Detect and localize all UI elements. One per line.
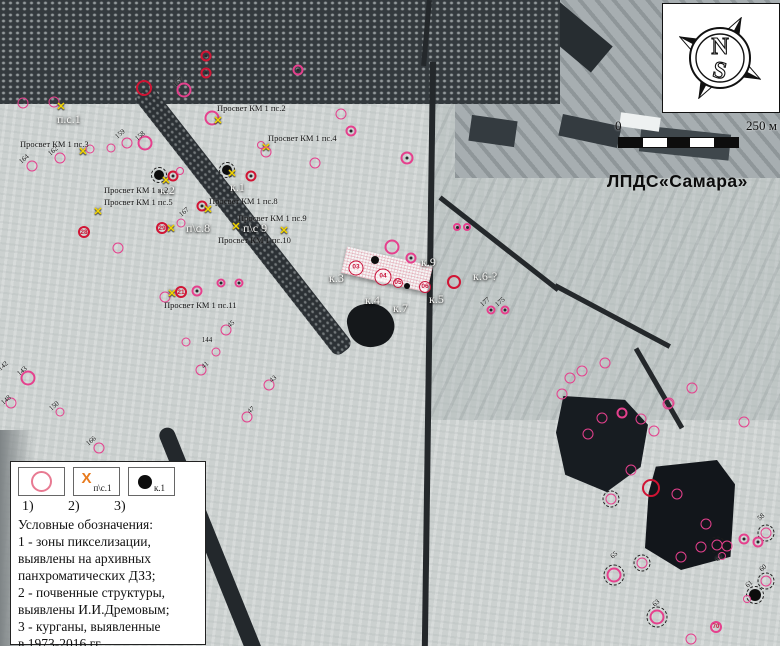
compass-north-letter: N [711,34,729,60]
pink-circle-marker [336,109,347,120]
map-number-label: 142 [0,360,10,373]
map-number-label: 63 [651,598,662,609]
pink-circle-marker [637,558,648,569]
pink-circle-marker [761,576,772,587]
pink-circle-dot-marker [401,152,414,165]
pink-circle-marker [385,240,400,255]
pink-circle-marker [686,634,697,645]
compass-rose-box: N S [662,3,780,113]
scale-max-label: 250 м [746,118,777,134]
yellow-x-marker: ✕ [226,168,238,180]
pink-circle-marker [687,383,698,394]
map-number-label: 60 [758,563,769,574]
pink-circle-dot-marker [453,223,461,231]
kurgan-black-dot-marker [404,283,410,289]
red-circle-marker [642,479,660,497]
clearing-label: Просвет КМ 1 пс.8 [209,196,278,206]
pink-circle-marker [676,552,687,563]
map-number-label: 65 [609,550,620,561]
pink-circle-marker [94,443,105,454]
pink-circle-marker [113,243,124,254]
clearing-label: Просвет КМ 1 пс.2 [217,103,286,113]
orange-x-icon: X [81,471,91,486]
yellow-x-marker: ✕ [212,115,224,127]
feature-label: к.9 [421,255,436,270]
red-circle-marker [136,80,152,96]
pink-circle-dot-marker [192,286,203,297]
pink-circle-marker [743,595,751,603]
feature-label: к.6-? [473,269,497,284]
clearing-label: Просвет КМ 1 пс.10 [218,235,291,245]
red-circle-marker [447,275,461,289]
pink-circle-marker [600,358,611,369]
map-number-label: 61 [744,579,755,590]
pink-circle-marker [176,167,184,175]
clearing-label: Просвет КМ 1 к.2 [104,185,168,195]
pink-circle-marker [122,138,133,149]
legend-title: Условные обозначения: [18,517,198,533]
legend-symbol-kurgan: к.1 [128,467,175,496]
pink-circle-marker [672,489,683,500]
pink-circle-marker [27,161,38,172]
pink-circle-marker [261,147,272,158]
scale-zero-label: 0 [615,118,622,134]
pink-circle-dot-marker [463,223,471,231]
feature-label: к.3 [329,271,344,286]
clearing-label: Просвет КМ 1 пс.4 [268,133,337,143]
pink-circle-marker [649,426,660,437]
aerial-map-figure: ✕✕✕✕✕✕✕✕✕29✕✕28✕210304050670157159158162… [0,0,780,646]
red-numbered-marker: 03 [349,261,364,276]
pink-circle-dot-marker [293,65,304,76]
feature-label: к.1 [230,180,245,195]
pink-circle-marker [761,528,772,539]
pink-circle-marker [606,494,617,505]
pink-numbered-marker: 70 [710,621,722,633]
feature-label: к.4 [365,293,380,308]
pink-circle-marker [722,541,733,552]
yellow-x-marker: ✕ [92,206,104,218]
pink-circle-marker [107,144,116,153]
legend-symbols: X п\с.1 к.1 [18,467,198,496]
map-number-label: 167 [177,206,190,219]
clearing-label: Просвет КМ 1 пс.11 [164,300,237,310]
pink-circle-marker [212,348,221,357]
pink-circle-marker [182,338,191,347]
legend-numbers: 1) 2) 3) [22,499,198,515]
red-circle-dot-marker [201,51,212,62]
feature-label: к.7 [393,301,408,316]
red-circle-dot-marker [201,68,212,79]
red-numbered-marker: 04 [375,269,392,286]
pink-circle-dot-marker [235,279,244,288]
black-dot-icon [138,475,152,489]
pink-circle-marker [626,465,637,476]
legend-symbol-pixelation-zone [18,467,65,496]
legend-number-2: 2) [68,499,114,515]
pink-circle-marker [577,366,588,377]
legend-box: X п\с.1 к.1 1) 2) 3) Условные обозначени… [10,461,206,645]
pink-circle-dot-marker [739,534,750,545]
legend-text: 1 - зоны пикселизации, выявлены на архив… [18,533,198,646]
pink-circle-marker [664,398,675,409]
pink-circle-dot-marker [617,408,628,419]
map-number-label: 58 [756,512,767,523]
yellow-x-marker: ✕ [165,223,177,235]
pink-circle-dot-marker [753,537,764,548]
scale-bar-segments [618,137,739,148]
feature-label: к.5 [429,292,444,307]
site-label: ЛПДС«Самара» [607,171,748,192]
feature-label: п.с.1 [57,112,81,127]
pink-circle-marker [565,373,576,384]
feature-label: к.2 [160,183,175,198]
compass-rose-icon: N S [663,4,778,111]
pink-circle-marker [701,519,712,530]
pink-circle-dot-marker [487,306,496,315]
scale-bar: 0 250 м [612,118,777,152]
pink-circle-dot-marker [501,306,510,315]
kurgan-black-dot-marker [371,256,379,264]
pink-circle-marker [18,98,29,109]
pink-circle-dot-marker [406,253,417,264]
red-numbered-marker: 28 [78,226,90,238]
legend-symbol-label: п\с.1 [93,483,111,493]
legend-number-1: 1) [22,499,68,515]
pink-circle-marker [636,414,647,425]
red-circle-dot-marker [246,171,257,182]
red-numbered-marker: 05 [393,278,403,288]
legend-number-3: 3) [114,499,160,515]
pink-circle-marker [650,610,665,625]
pink-circle-icon [31,471,52,492]
pink-circle-marker [56,408,65,417]
pink-circle-marker [607,568,622,583]
pink-circle-marker [310,158,321,169]
pink-circle-marker [177,219,186,228]
red-numbered-marker: 21 [175,286,187,298]
pink-circle-marker [696,542,707,553]
pink-circle-dot-marker [217,279,226,288]
pink-circle-marker [55,153,66,164]
legend-symbol-label: к.1 [154,483,165,493]
clearing-label: Просвет КМ 1 пс.5 [104,197,173,207]
pink-circle-marker [583,429,594,440]
feature-label: п\с.8 [186,221,210,236]
feature-label: п\с 9 [243,221,267,236]
pink-circle-marker [557,389,568,400]
pink-circle-marker [597,413,608,424]
clearing-label: Просвет КМ 1 пс.3 [20,139,89,149]
map-number-label: 144 [202,336,213,344]
pink-circle-dot-marker [346,126,357,137]
legend-symbol-soil-structure: X п\с.1 [73,467,120,496]
pink-circle-marker [739,417,750,428]
